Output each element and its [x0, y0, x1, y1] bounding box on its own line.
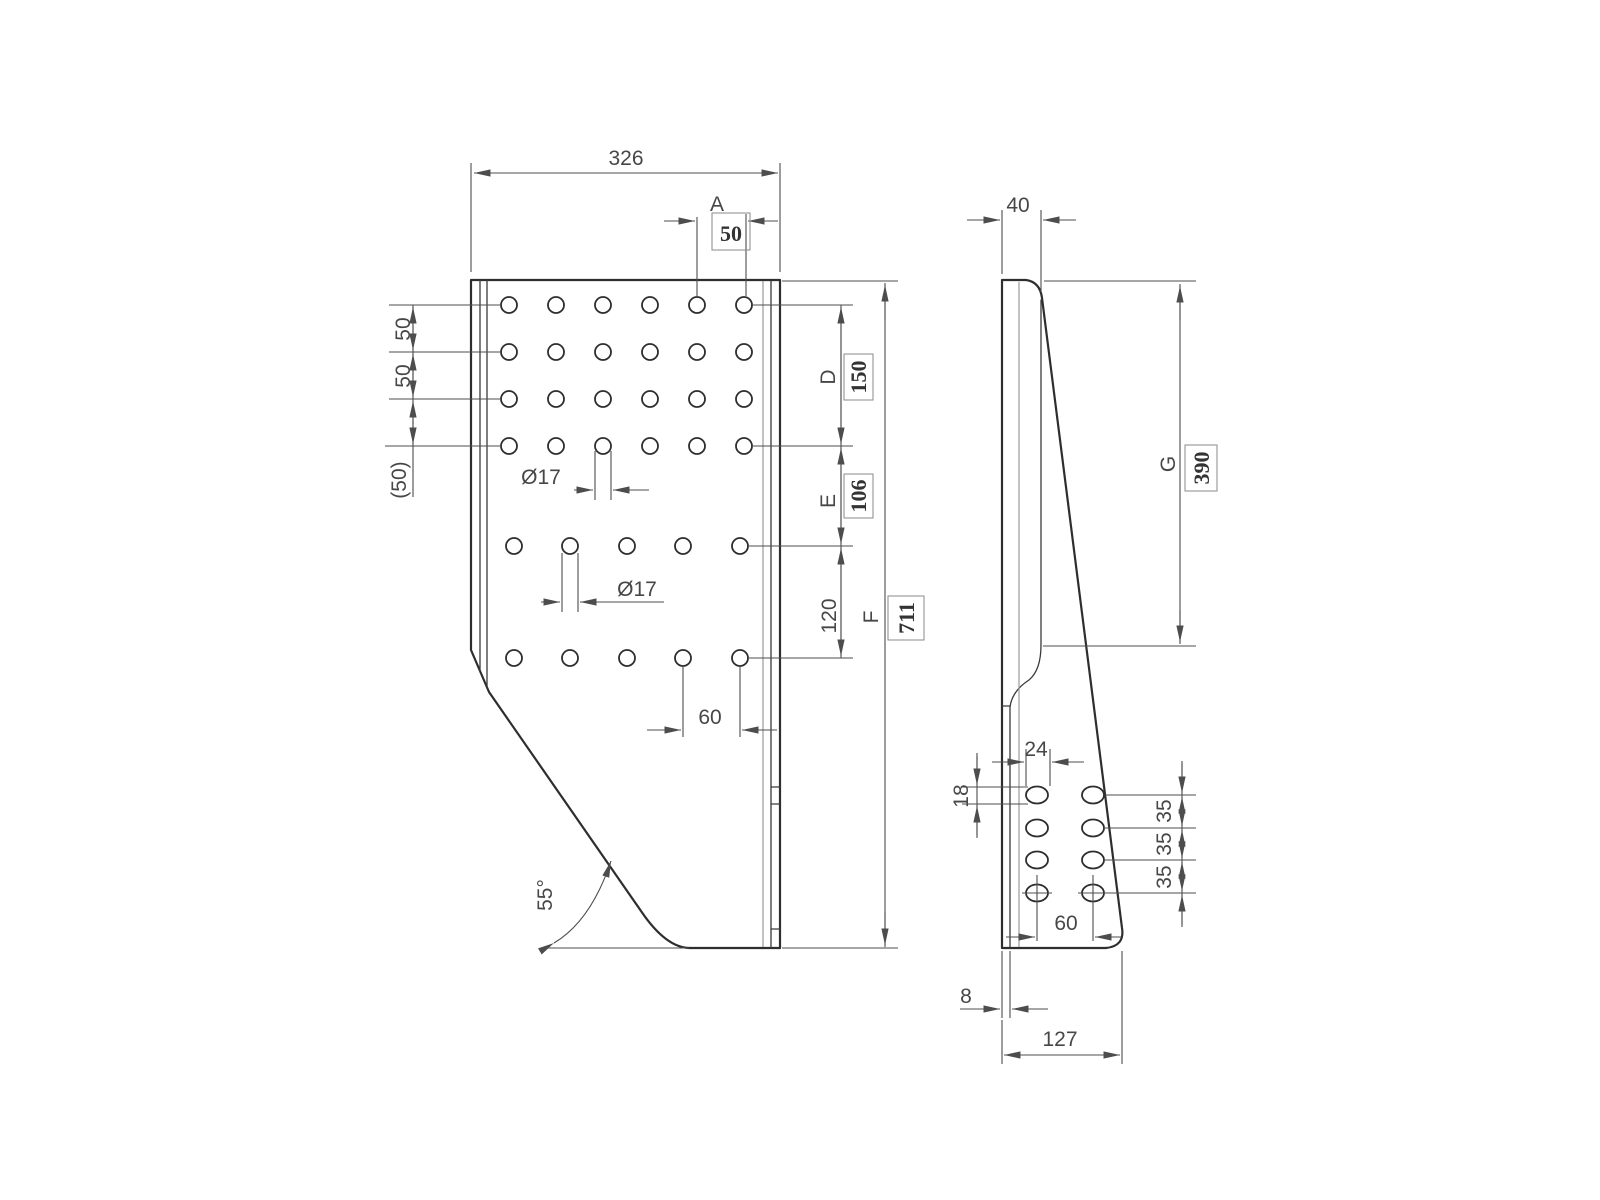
dim-depth-40: 40	[967, 194, 1076, 292]
front-view: 326 A 50 50 50 (50)	[385, 147, 924, 948]
side-profile-outline	[1002, 280, 1122, 948]
slot-col-pitch-label: 60	[1054, 912, 1077, 935]
row-pitch-1: 50	[392, 317, 415, 340]
dim-col-pitch-60: 60	[647, 666, 777, 737]
dim-f-value: 711	[894, 602, 919, 634]
side-view: 40 G 390 24 18	[950, 194, 1217, 1064]
front-plate-outline	[471, 280, 780, 948]
slot-pitch-2: 35	[1153, 832, 1176, 855]
seg-e-label: E	[817, 494, 840, 508]
dim-overall-width-326: 326	[471, 147, 780, 272]
slot-pitch-3: 35	[1153, 865, 1176, 888]
dim-a-value: 50	[720, 221, 742, 246]
slot-height-label: 18	[950, 784, 973, 807]
dim-326-label: 326	[608, 147, 643, 170]
dim-segment-chain: D 150 E 106 120	[748, 305, 873, 658]
thickness-label: 8	[960, 985, 972, 1008]
seg-g-label: G	[1157, 456, 1180, 472]
dim-seg-g-390: G 390	[1043, 281, 1217, 646]
depth-40-label: 40	[1006, 194, 1029, 217]
row-pitch-2: 50	[392, 364, 415, 387]
front-hole-grid-top	[501, 297, 752, 454]
dim-f-label: F	[860, 611, 883, 624]
dim-hole-dia-mid: Ø17	[541, 553, 664, 612]
technical-drawing: 326 A 50 50 50 (50)	[0, 0, 1600, 1200]
seg-d-value: 150	[846, 361, 871, 394]
seg-e-value: 106	[846, 480, 871, 513]
dim-slot-col-pitch-60: 60	[1006, 912, 1121, 937]
bottom-width-label: 127	[1042, 1028, 1077, 1051]
seg-d-label: D	[817, 369, 840, 384]
hole-dia-mid-label: Ø17	[617, 578, 657, 601]
row-pitch-3-ref: (50)	[388, 461, 411, 498]
dim-hole-dia-top: Ø17	[521, 451, 649, 500]
hole-dia-top-label: Ø17	[521, 466, 561, 489]
dim-thickness-8: 8	[960, 951, 1048, 1018]
slot-pitch-1: 35	[1153, 799, 1176, 822]
dim-bend-angle-55: 55°	[534, 861, 689, 948]
dim-bottom-width-127: 127	[1002, 951, 1122, 1064]
seg-g-value: 390	[1189, 452, 1214, 485]
dim-row-pitch-chain: 50 50 (50)	[385, 305, 501, 499]
dim-slot-height-18: 18	[950, 753, 1028, 838]
seg-120-label: 120	[818, 598, 841, 633]
slot-width-label: 24	[1024, 738, 1048, 761]
col-pitch-60-label: 60	[698, 706, 721, 729]
technical-drawing-page: 326 A 50 50 50 (50)	[0, 0, 1600, 1200]
dim-slot-width-24: 24	[992, 738, 1084, 786]
bend-angle-label: 55°	[534, 879, 557, 911]
